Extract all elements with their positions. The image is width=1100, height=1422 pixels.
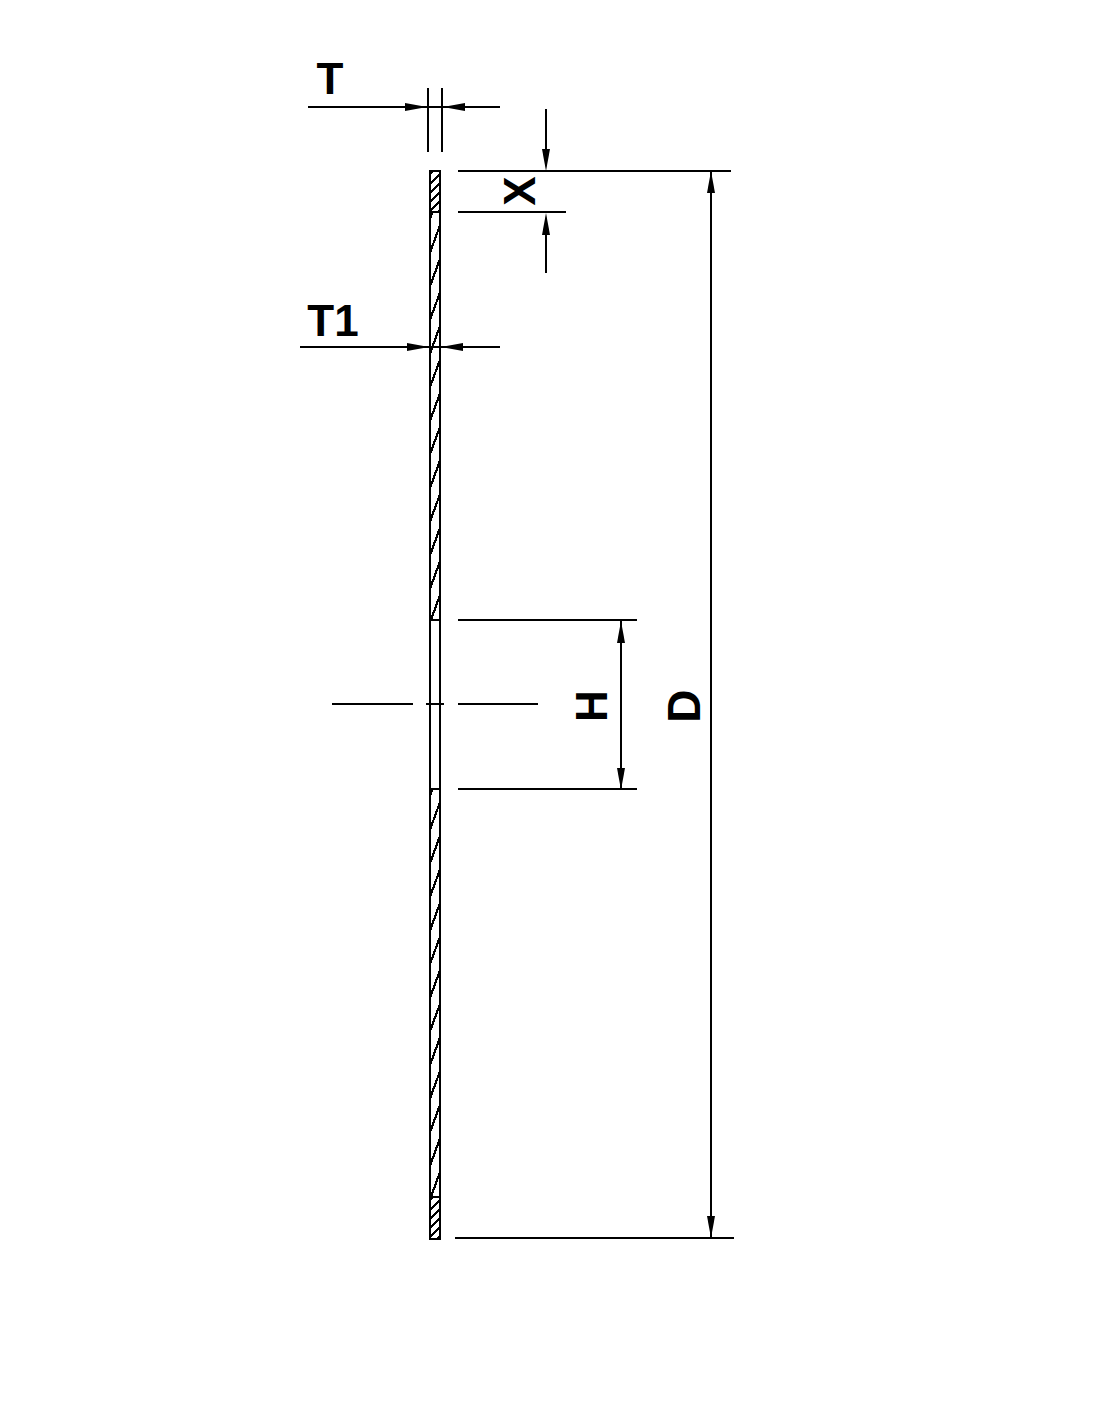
centerline-left-segment (332, 703, 413, 705)
t1-dimension-line (300, 346, 500, 348)
dimension-label-t: T (306, 57, 354, 101)
h-extension-line-bottom (458, 788, 637, 790)
t-dimension-line (308, 106, 500, 108)
t1-arrowhead-left (441, 343, 463, 351)
t-arrowhead-left (443, 103, 465, 111)
dimension-label-t1: T1 (303, 299, 363, 343)
dimension-label-h: H (570, 684, 614, 728)
t-arrowhead-right (405, 103, 427, 111)
abrasive-rim-hatch-top (431, 172, 439, 211)
core-hatch-upper (431, 213, 439, 619)
h-arrowhead-down (617, 768, 625, 790)
dimension-label-d: D (661, 683, 707, 729)
x-arrowhead-down (542, 149, 550, 171)
x-dimension-line-upper (545, 109, 547, 151)
technical-drawing-canvas: T T1 X H D (0, 0, 1100, 1422)
centerline-right-segment (458, 703, 538, 705)
d-arrowhead-up (707, 171, 715, 193)
x-arrowhead-up (542, 213, 550, 235)
core-hatch-lower (431, 790, 439, 1196)
t-extension-line-right (441, 88, 443, 152)
h-arrowhead-up (617, 621, 625, 643)
d-dimension-line (710, 171, 712, 1238)
x-dimension-line-lower (545, 233, 547, 273)
d-arrowhead-down (707, 1216, 715, 1238)
bore-edge-line-top (429, 619, 441, 621)
dimension-label-x: X (498, 169, 542, 213)
d-extension-line-bottom (455, 1237, 734, 1239)
h-extension-line-top (458, 619, 637, 621)
abrasive-rim-hatch-bottom (431, 1198, 439, 1238)
centerline-cross-tick (426, 703, 444, 705)
h-dimension-line (620, 621, 622, 788)
t-extension-line-left (427, 88, 429, 152)
t1-arrowhead-right (407, 343, 429, 351)
